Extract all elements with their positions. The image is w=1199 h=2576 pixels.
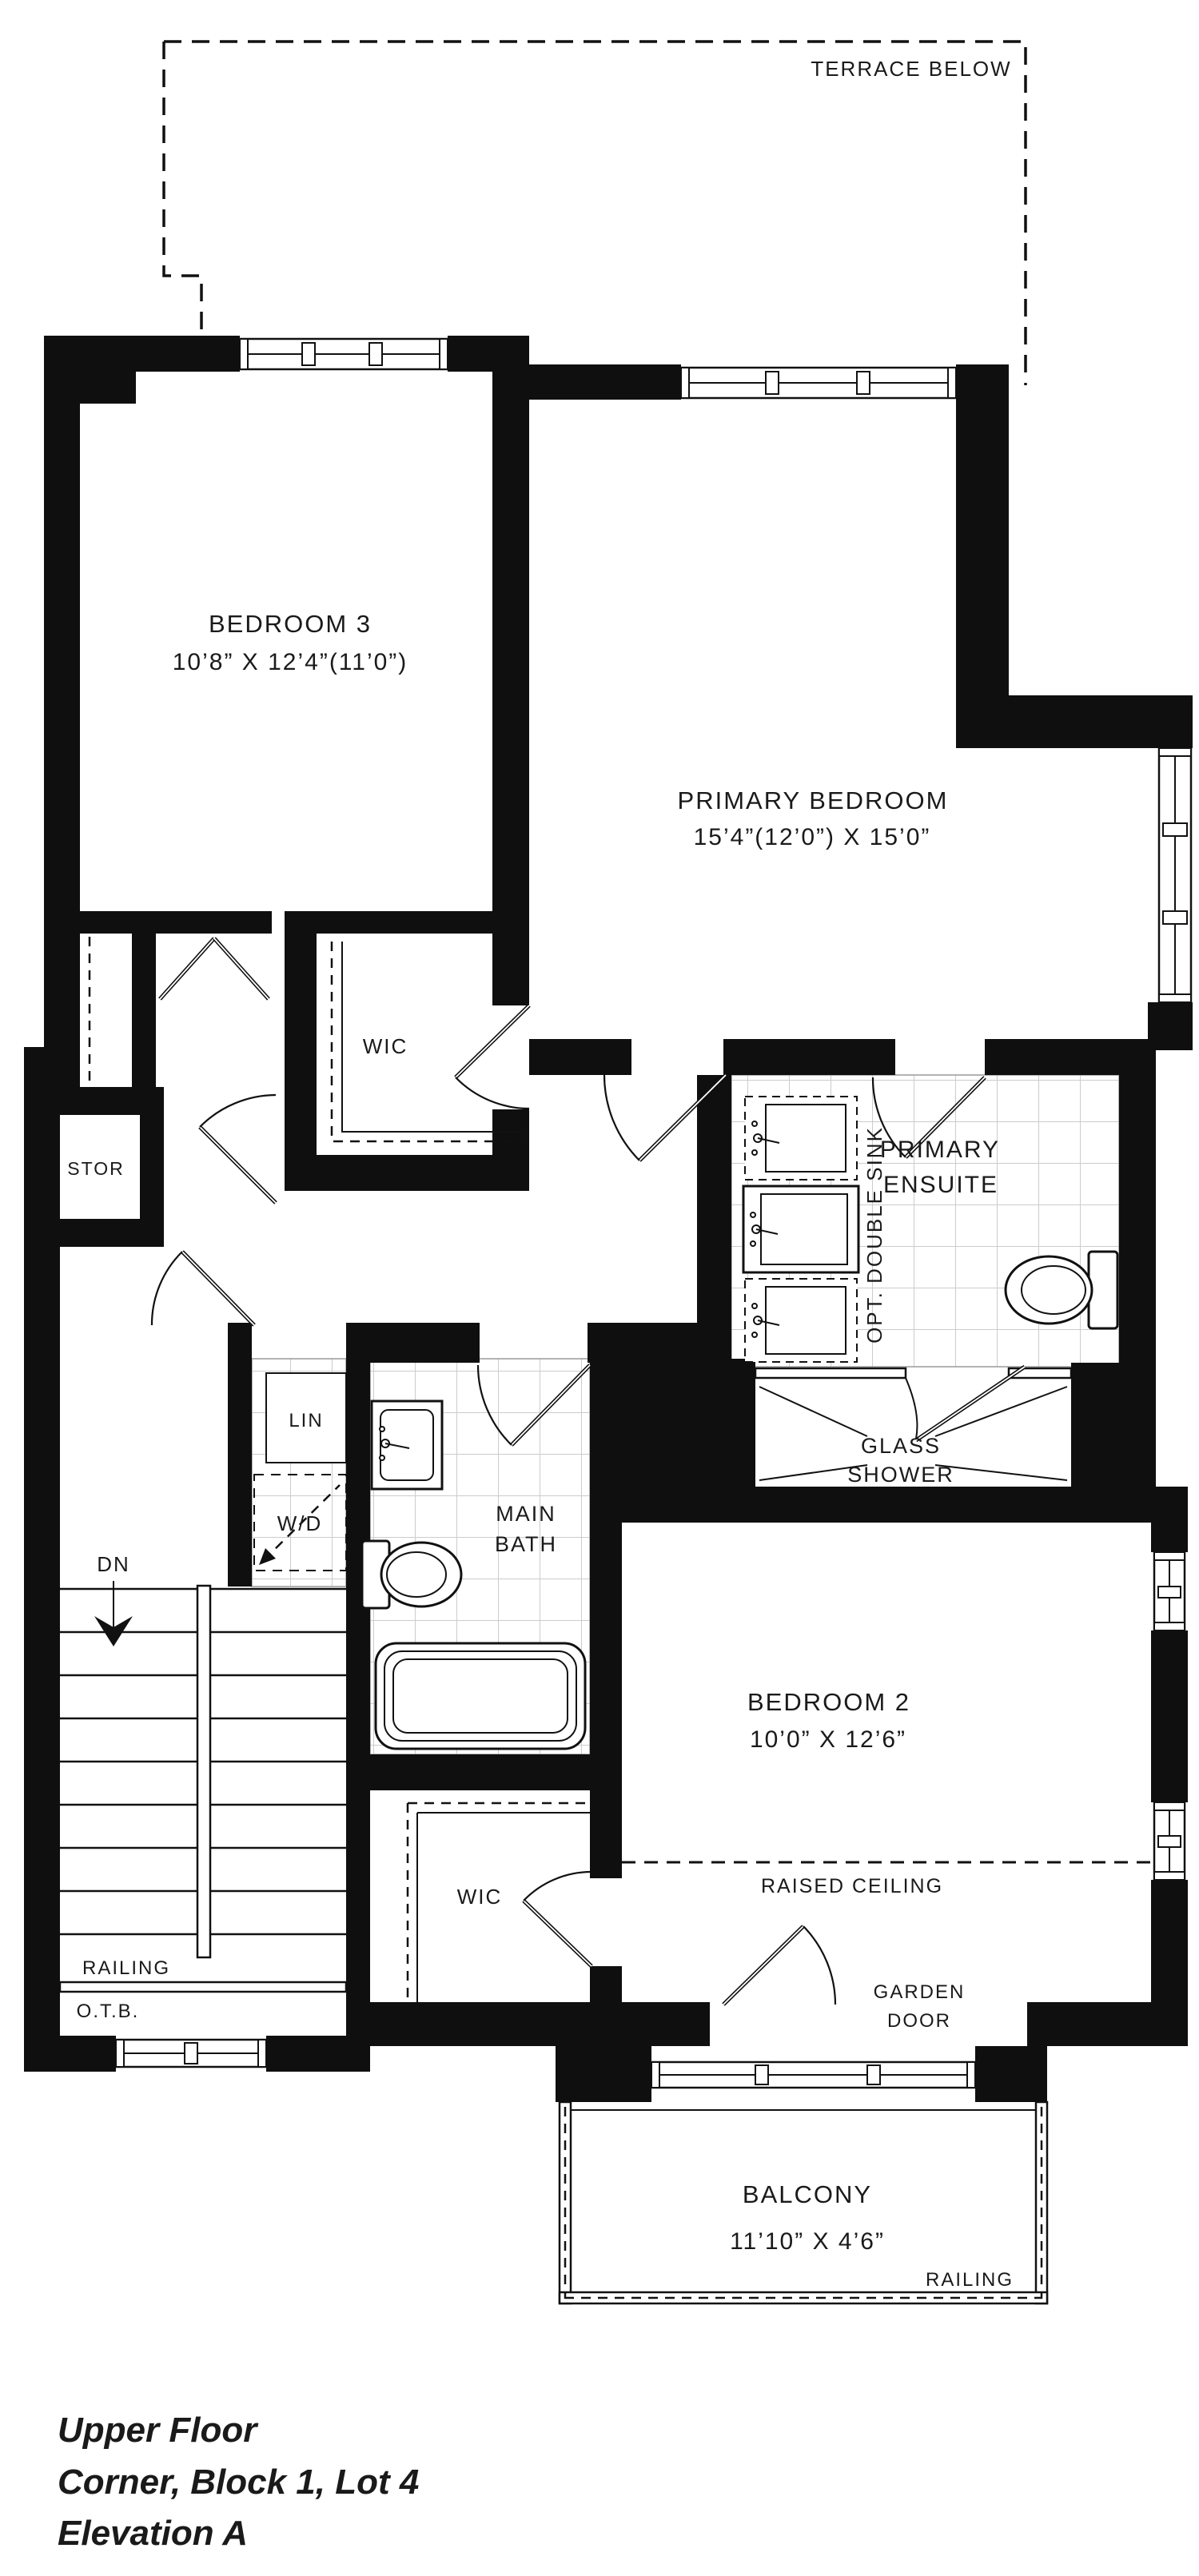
footer-line-1: Upper Floor [58,2411,259,2450]
primary-bedroom-window [681,368,956,398]
railing-stairs-label: RAILING [82,1957,170,1979]
ensuite-label-1: PRIMARY [880,1137,1000,1163]
wic-lower-shelf [417,1813,590,2002]
footer-line-3: Elevation A [58,2514,248,2553]
bath-toilet [362,1541,461,1608]
glass-shower-label-2: SHOWER [847,1463,954,1487]
garden-door-label-1: GARDEN [874,1981,966,2003]
main-bath-label-2: BATH [495,1532,557,1556]
glass-shower-label-1: GLASS [861,1434,941,1458]
balcony-name: BALCONY [743,2180,872,2208]
laundry-door [152,1252,254,1325]
otb-label: O.T.B. [77,2001,140,2022]
terrace-outline [164,42,1026,385]
main-bath-label-1: MAIN [496,1502,556,1526]
primary-bay-window [1159,748,1191,1002]
stor-label: STOR [67,1158,124,1179]
garden-door-label-2: DOOR [887,2010,951,2032]
wic-upper-label: WIC [363,1034,408,1058]
ensuite-vanity [743,1097,858,1362]
bedroom2-name: BEDROOM 2 [747,1688,910,1716]
staircase [60,1581,346,1992]
footer: Upper Floor Corner, Block 1, Lot 4 Eleva… [58,2411,419,2553]
floor-plan-svg: TERRACE BELOW BEDROOM 3 10’8” X 12’4”(11… [0,0,1199,2576]
hall-door [200,1095,276,1203]
terrace-label: TERRACE BELOW [811,57,1011,81]
stair-stringer [197,1586,210,1957]
wic-lower-door [524,1872,592,1966]
bedroom2-window-lower [1154,1802,1185,1880]
wic-upper-door [456,1005,529,1109]
primary-dims: 15’4”(12’0”) X 15’0” [694,824,931,850]
railing-balcony-label: RAILING [926,2269,1014,2291]
floor-plan: TERRACE BELOW BEDROOM 3 10’8” X 12’4”(11… [0,0,1199,2576]
bedroom2-window-upper [1154,1552,1185,1630]
raised-ceiling-label: RAISED CEILING [761,1875,943,1897]
bedroom3-closet-doors [160,938,269,999]
bedroom3-name: BEDROOM 3 [209,610,372,638]
bath-vanity [372,1401,442,1489]
garden-door-swing [723,1926,835,2005]
primary-name: PRIMARY BEDROOM [678,786,949,814]
balcony-dims: 11’10” X 4’6” [730,2228,885,2255]
bathtub [376,1643,585,1749]
ensuite-toilet [1006,1252,1117,1328]
otb-window [116,2040,266,2067]
bedroom3-dims: 10’8” X 12’4”(11’0”) [173,649,408,675]
bedroom3-window [240,339,448,369]
bedroom2-dims: 10’0” X 12’6” [750,1726,906,1753]
wd-label: W/D [277,1511,323,1535]
ensuite-label-2: ENSUITE [883,1172,998,1198]
dn-label: DN [97,1552,130,1576]
footer-line-2: Corner, Block 1, Lot 4 [58,2463,419,2502]
stair-railing [60,1982,346,1992]
lin-label: LIN [289,1410,323,1431]
wic-lower-label: WIC [457,1885,503,1909]
